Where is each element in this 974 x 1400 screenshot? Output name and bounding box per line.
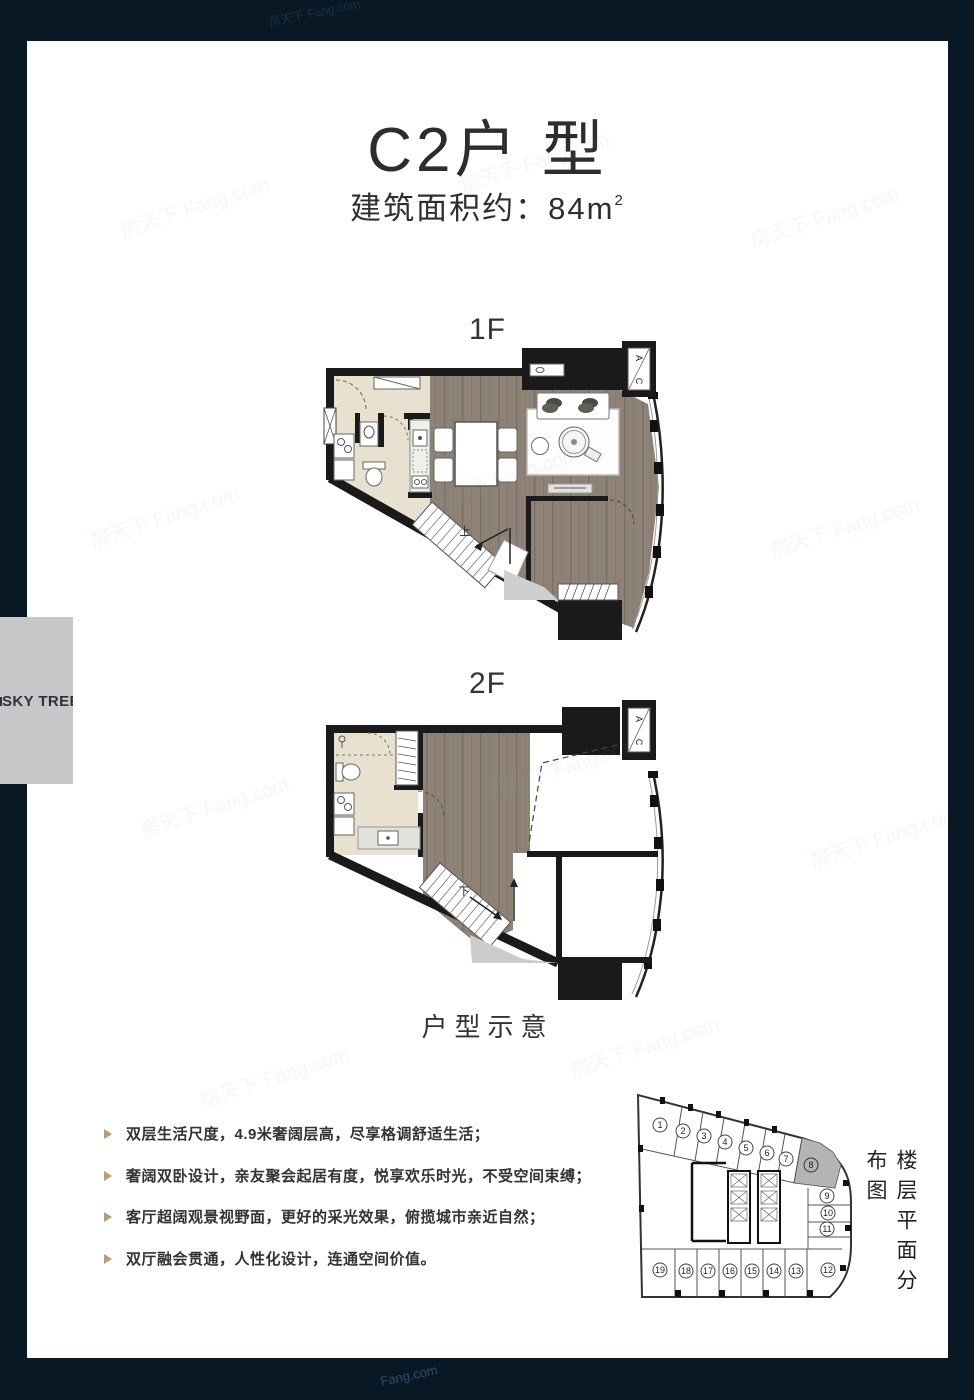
svg-text:17: 17 <box>703 1266 713 1276</box>
floor2-plan: A C <box>318 695 668 1007</box>
logo-box: SKY TREE <box>0 617 73 784</box>
svg-text:5: 5 <box>743 1143 748 1153</box>
svg-text:18: 18 <box>681 1266 691 1276</box>
ac-unit: A C <box>622 700 656 760</box>
feature-text: 双厅融会贯通，人性化设计，连通空间价值。 <box>126 1251 436 1268</box>
svg-text:12: 12 <box>823 1265 833 1275</box>
svg-text:16: 16 <box>725 1266 735 1276</box>
bullet-arrow-icon <box>104 1254 112 1264</box>
svg-text:4: 4 <box>722 1137 727 1147</box>
watermark: 房天下 Fang.com <box>196 1038 352 1113</box>
svg-text:6: 6 <box>764 1148 769 1158</box>
bullet-arrow-icon <box>104 1129 112 1139</box>
watermark: 房天下 Fang.com <box>766 488 922 563</box>
feature-item: 客厅超阔观景视野面，更好的采光效果，俯揽城市亲近自然； <box>104 1210 644 1227</box>
ac-label-a: A <box>634 355 644 361</box>
void-dashed-boundary <box>529 745 617 843</box>
feature-text: 双层生活尺度，4.9米奢阔层高，尽享格调舒适生活； <box>126 1126 489 1143</box>
feature-item: 双厅融会贯通，人性化设计，连通空间价值。 <box>104 1252 644 1269</box>
distribution-title: 楼层平面分布图 <box>860 1149 920 1319</box>
svg-text:9: 9 <box>824 1191 829 1201</box>
page: C2户 型 建筑面积约：84m2 1F <box>0 0 974 1400</box>
watermark: 房天下 Fang.com <box>806 798 948 873</box>
feature-item: 奢阔双卧设计，亲友聚会起居有度，悦享欢乐时光，不受空间束缚； <box>104 1169 644 1186</box>
svg-text:10: 10 <box>823 1208 833 1218</box>
feature-item: 双层生活尺度，4.9米奢阔层高，尽享格调舒适生活； <box>104 1127 644 1144</box>
feature-text: 客厅超阔观景视野面，更好的采光效果，俯揽城市亲近自然； <box>126 1209 545 1226</box>
stair-label-down: 下 <box>459 886 470 898</box>
watermark: 房天下 Fang.com <box>86 478 242 553</box>
area-text: 建筑面积约：84m <box>350 191 614 226</box>
watermark: 房天下 Fang.com <box>136 768 292 843</box>
area-subtitle: 建筑面积约：84m2 <box>27 183 948 228</box>
plan-caption: 户型示意 <box>27 1007 948 1044</box>
svg-text:2: 2 <box>680 1126 685 1136</box>
wardrobe <box>558 584 618 600</box>
svg-text:15: 15 <box>747 1266 757 1276</box>
floor1-plan: A C <box>318 332 668 648</box>
svg-text:13: 13 <box>791 1266 801 1276</box>
ac-label-a: A <box>634 716 644 722</box>
svg-text:19: 19 <box>655 1265 665 1275</box>
svg-text:1: 1 <box>657 1120 662 1130</box>
area-superscript: 2 <box>614 192 624 209</box>
page-title: C2户 型 <box>27 99 948 189</box>
svg-text:8: 8 <box>808 1160 813 1170</box>
stair-label-up: 上 <box>460 525 471 538</box>
floor-distribution-map: 1 2 3 4 5 6 7 8 9 10 11 12 13 14 15 16 1… <box>630 1085 862 1307</box>
ac-label-c: C <box>634 378 644 385</box>
watermark-bottom-border: Fang.com <box>379 1362 439 1389</box>
ac-label-c: C <box>634 739 644 746</box>
feature-text: 奢阔双卧设计，亲友聚会起居有度，悦享欢乐时光，不受空间束缚； <box>126 1168 591 1185</box>
svg-text:14: 14 <box>769 1266 779 1276</box>
svg-text:7: 7 <box>783 1154 788 1164</box>
watermark-top-border: 房天下 Fang.com <box>267 0 361 30</box>
ac-unit: A C <box>622 341 656 397</box>
feature-list: 双层生活尺度，4.9米奢阔层高，尽享格调舒适生活； 奢阔双卧设计，亲友聚会起居有… <box>104 1127 644 1293</box>
svg-text:3: 3 <box>701 1131 706 1141</box>
svg-text:11: 11 <box>822 1224 831 1234</box>
bullet-arrow-icon <box>104 1212 112 1222</box>
content-area: C2户 型 建筑面积约：84m2 1F <box>27 41 948 1358</box>
wardrobe <box>396 731 418 785</box>
logo-text: SKY TREE <box>2 693 73 710</box>
bullet-arrow-icon <box>104 1171 112 1181</box>
